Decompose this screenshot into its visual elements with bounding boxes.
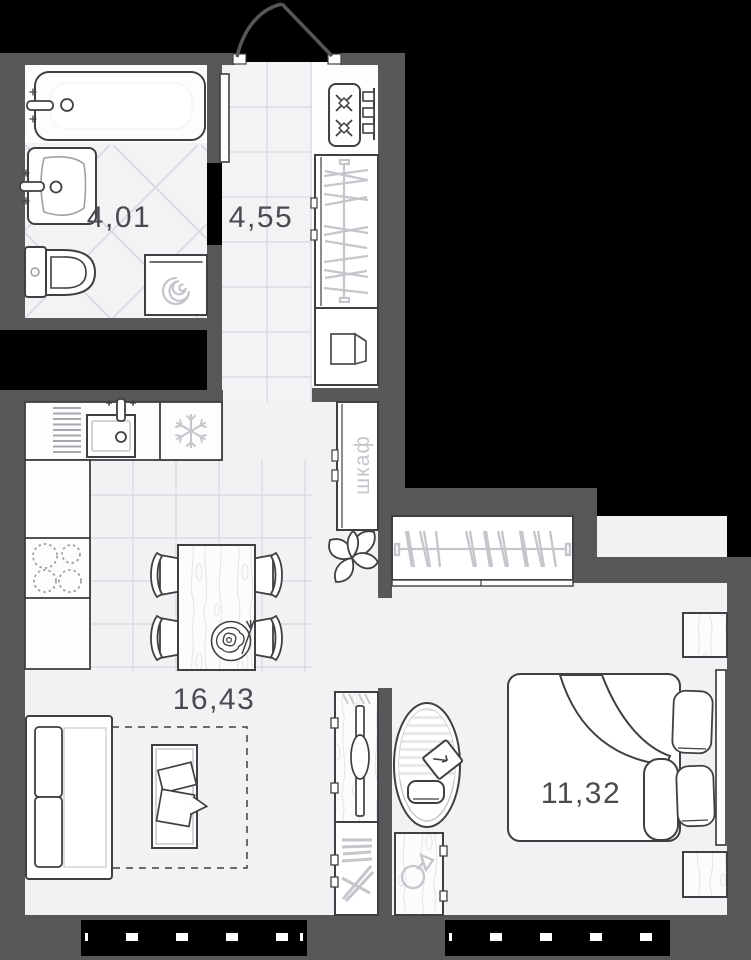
bedroom-area-label: 11,32 <box>541 777 621 810</box>
bedroom-wardrobe <box>392 516 573 586</box>
bathroom-door-leaf <box>220 74 229 162</box>
chair-seat-icon <box>408 781 444 803</box>
pillow-icon <box>676 765 715 826</box>
nightstand-icon <box>683 852 727 897</box>
fridge-snowflake-icon <box>160 402 222 460</box>
washbasin-icon <box>20 148 96 224</box>
tv-console-icon <box>331 692 378 822</box>
sofa-icon <box>26 716 112 879</box>
pillow-icon <box>672 690 713 753</box>
wardrobe-label: шкаф <box>351 435 374 494</box>
washing-machine-spiral-icon <box>145 255 207 315</box>
toilet-icon <box>25 247 95 297</box>
hallway-area-label: 4,55 <box>229 201 293 234</box>
floor-plan-svg: шкаф <box>0 0 751 960</box>
wall-radiator-icon <box>363 88 374 140</box>
desk <box>395 833 447 915</box>
floor-plan: шкаф <box>0 0 751 960</box>
headboard <box>716 670 726 845</box>
hob-rings-icon <box>329 84 360 146</box>
hall-wardrobe <box>311 155 378 308</box>
bathtub-icon <box>27 72 205 140</box>
corridor-wardrobe: шкаф <box>332 402 378 530</box>
blanket-roll <box>644 759 678 840</box>
bathroom-area-label: 4,01 <box>87 201 151 234</box>
cooktop-burners-icon <box>25 538 90 598</box>
nightstand-icon <box>683 613 727 657</box>
hall-cabinet <box>315 308 378 385</box>
window-icon <box>445 920 670 956</box>
window-icon <box>81 920 307 956</box>
bookshelf-icon <box>331 822 378 915</box>
storage-box-icon <box>331 334 366 364</box>
kitchen-living-area-label: 16,43 <box>173 683 256 716</box>
